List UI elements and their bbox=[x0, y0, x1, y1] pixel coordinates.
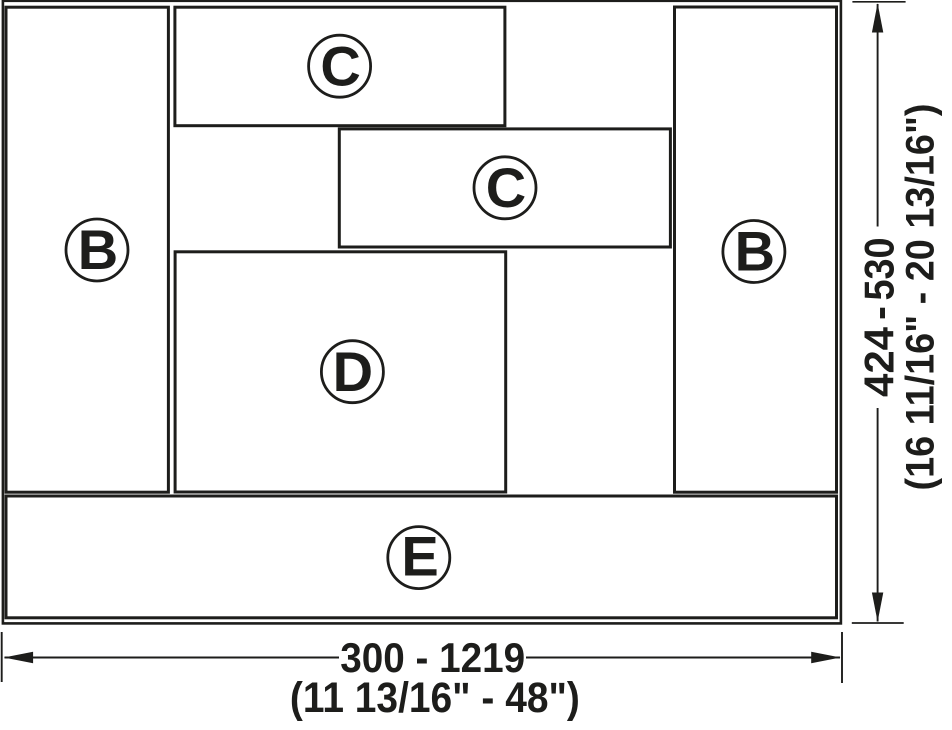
svg-text:C: C bbox=[486, 156, 526, 219]
svg-text:C: C bbox=[320, 34, 360, 97]
svg-text:424: 424 bbox=[856, 326, 903, 397]
svg-text:D: D bbox=[333, 340, 373, 403]
svg-text:(11 13/16" - 48"): (11 13/16" - 48") bbox=[290, 675, 580, 722]
svg-text:300 - 1219: 300 - 1219 bbox=[340, 634, 525, 681]
svg-text:(16 11/16" - 20 13/16"): (16 11/16" - 20 13/16") bbox=[899, 104, 943, 491]
svg-text:B: B bbox=[78, 218, 118, 281]
svg-text:-: - bbox=[856, 306, 903, 320]
svg-text:B: B bbox=[735, 220, 775, 283]
svg-text:E: E bbox=[401, 524, 438, 587]
svg-text:530: 530 bbox=[856, 238, 903, 301]
